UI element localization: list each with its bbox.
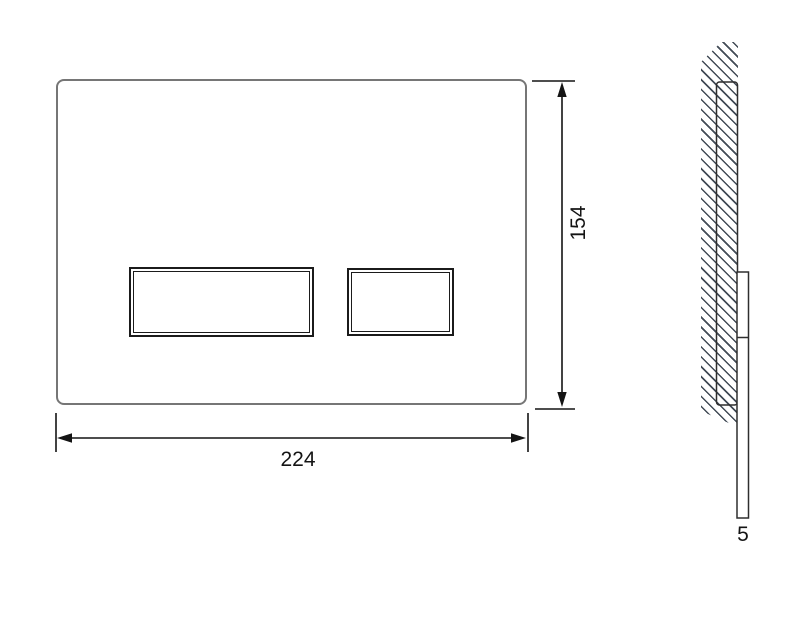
arrowhead-left — [57, 433, 72, 442]
side-view-plate-profile — [737, 272, 749, 518]
arrowhead-up — [557, 82, 566, 97]
dimension-depth-value: 5 — [721, 524, 765, 545]
dimension-height-value: 154 — [559, 204, 597, 242]
side-view-concealed-frame — [717, 82, 738, 405]
dimension-height-lines — [532, 81, 575, 409]
arrowhead-down — [557, 392, 566, 407]
dimension-width-value: 224 — [256, 449, 340, 470]
dimension-linework — [0, 0, 800, 619]
technical-drawing-canvas: 224 154 5 — [0, 0, 800, 619]
arrowhead-right — [511, 433, 526, 442]
dimension-width-lines — [56, 413, 528, 452]
